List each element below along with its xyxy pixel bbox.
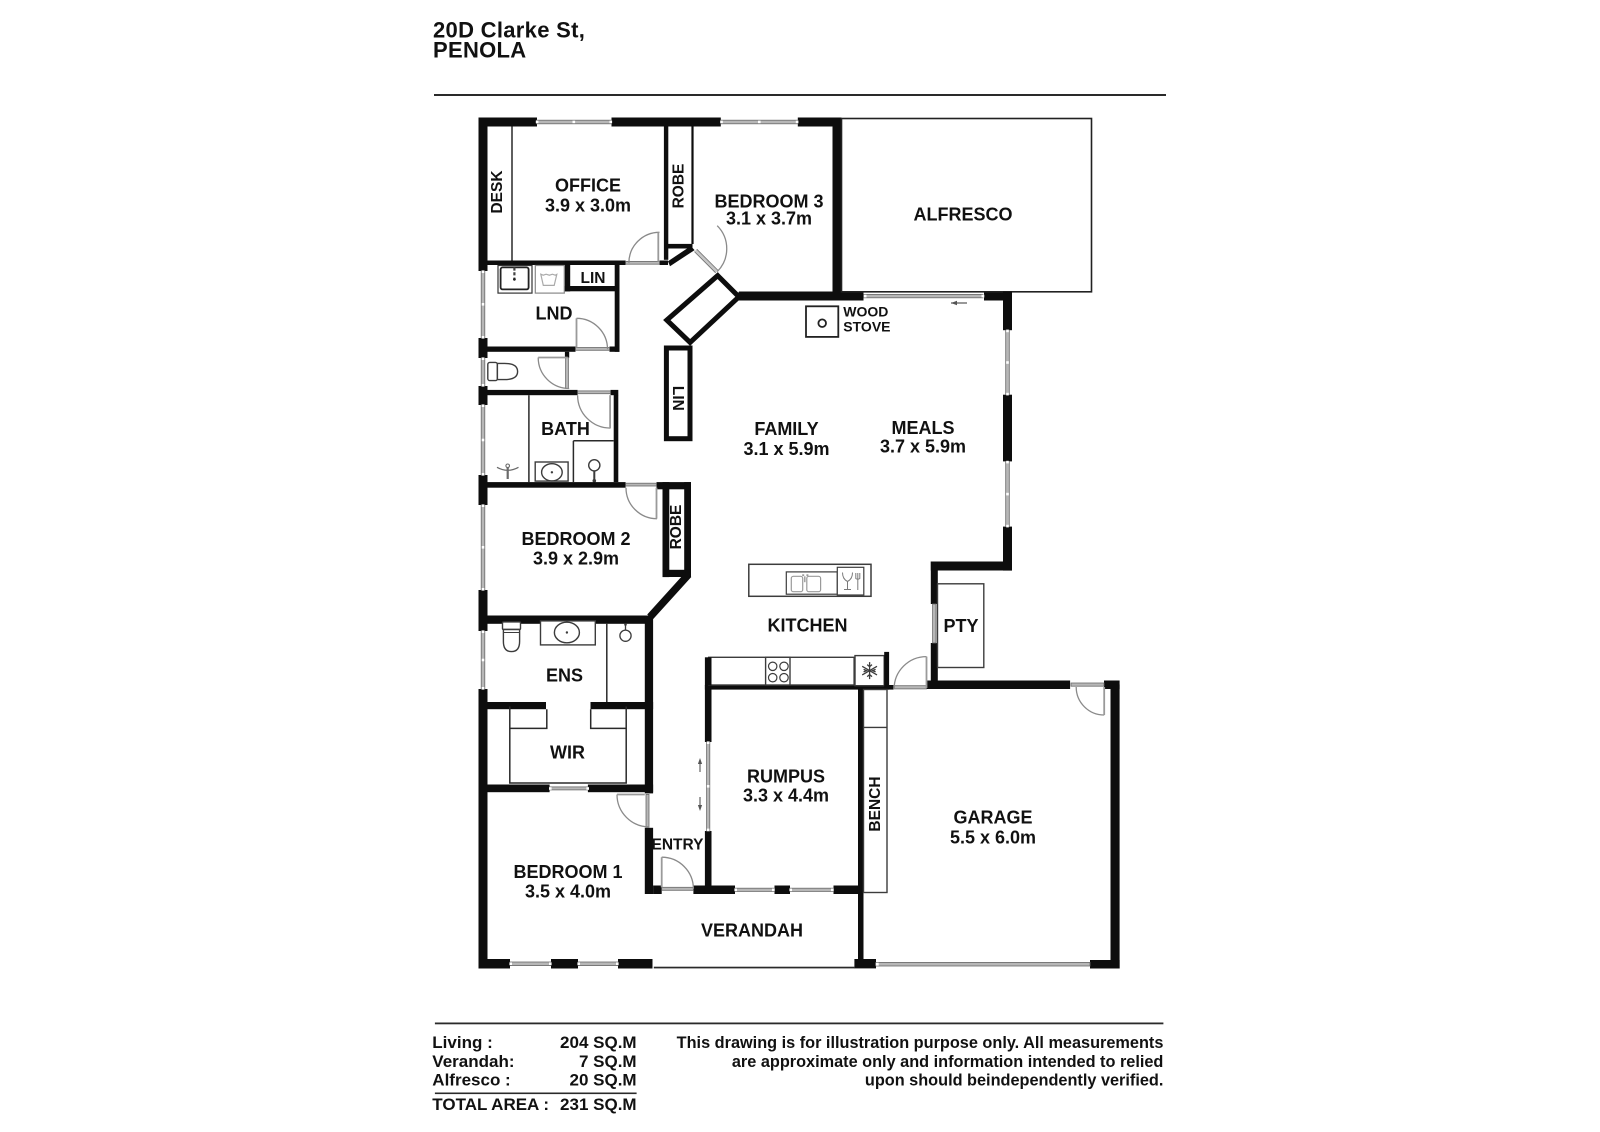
svg-text:204 SQ.M: 204 SQ.M bbox=[560, 1033, 637, 1052]
svg-text:3.1 x 5.9m: 3.1 x 5.9m bbox=[743, 439, 829, 459]
svg-text:LND: LND bbox=[536, 304, 573, 324]
svg-text:are approximate only and infor: are approximate only and information int… bbox=[732, 1053, 1164, 1071]
svg-text:BEDROOM 1: BEDROOM 1 bbox=[513, 862, 622, 882]
svg-text:upon should beindependently ve: upon should beindependently verified. bbox=[865, 1072, 1164, 1090]
svg-text:RUMPUS: RUMPUS bbox=[747, 767, 825, 787]
svg-text:3.3 x 4.4m: 3.3 x 4.4m bbox=[743, 786, 829, 806]
svg-text:Living :: Living : bbox=[432, 1033, 492, 1052]
svg-text:BENCH: BENCH bbox=[867, 776, 884, 831]
svg-text:GARAGE: GARAGE bbox=[953, 808, 1032, 828]
svg-text:TOTAL AREA :: TOTAL AREA : bbox=[432, 1095, 549, 1114]
svg-text:ENS: ENS bbox=[546, 666, 583, 686]
svg-text:LIN: LIN bbox=[669, 386, 686, 411]
svg-text:3.9 x 2.9m: 3.9 x 2.9m bbox=[533, 549, 619, 569]
svg-text:BEDROOM 2: BEDROOM 2 bbox=[521, 529, 630, 549]
svg-text:VERANDAH: VERANDAH bbox=[701, 921, 803, 941]
svg-text:3.1 x 3.7m: 3.1 x 3.7m bbox=[726, 209, 812, 229]
svg-text:3.5 x 4.0m: 3.5 x 4.0m bbox=[525, 882, 611, 902]
svg-text:MEALS: MEALS bbox=[892, 418, 955, 438]
svg-text:KITCHEN: KITCHEN bbox=[768, 616, 848, 636]
svg-text:ALFRESCO: ALFRESCO bbox=[914, 205, 1013, 225]
svg-text:OFFICE: OFFICE bbox=[555, 176, 621, 196]
svg-text:BATH: BATH bbox=[541, 419, 590, 439]
svg-text:231 SQ.M: 231 SQ.M bbox=[560, 1095, 637, 1114]
svg-text:WOOD: WOOD bbox=[843, 304, 888, 320]
svg-text:20 SQ.M: 20 SQ.M bbox=[570, 1071, 637, 1090]
svg-text:ROBE: ROBE bbox=[668, 505, 685, 550]
svg-text:PENOLA: PENOLA bbox=[433, 38, 526, 63]
svg-text:ENTRY: ENTRY bbox=[652, 837, 705, 854]
svg-text:3.9 x 3.0m: 3.9 x 3.0m bbox=[545, 196, 631, 216]
svg-text:DESK: DESK bbox=[489, 170, 506, 214]
svg-text:5.5 x 6.0m: 5.5 x 6.0m bbox=[950, 828, 1036, 848]
svg-text:STOVE: STOVE bbox=[843, 319, 890, 335]
svg-text:This drawing is for illustrati: This drawing is for illustration purpose… bbox=[677, 1034, 1164, 1052]
svg-text:Alfresco :: Alfresco : bbox=[432, 1071, 510, 1090]
svg-text:FAMILY: FAMILY bbox=[754, 419, 818, 439]
svg-text:PTY: PTY bbox=[943, 616, 978, 636]
svg-text:3.7 x 5.9m: 3.7 x 5.9m bbox=[880, 437, 966, 457]
svg-text:LIN: LIN bbox=[581, 270, 606, 287]
svg-text:Verandah:: Verandah: bbox=[432, 1052, 514, 1071]
svg-text:WIR: WIR bbox=[550, 743, 585, 763]
svg-text:7 SQ.M: 7 SQ.M bbox=[579, 1052, 637, 1071]
svg-text:ROBE: ROBE bbox=[671, 164, 688, 209]
